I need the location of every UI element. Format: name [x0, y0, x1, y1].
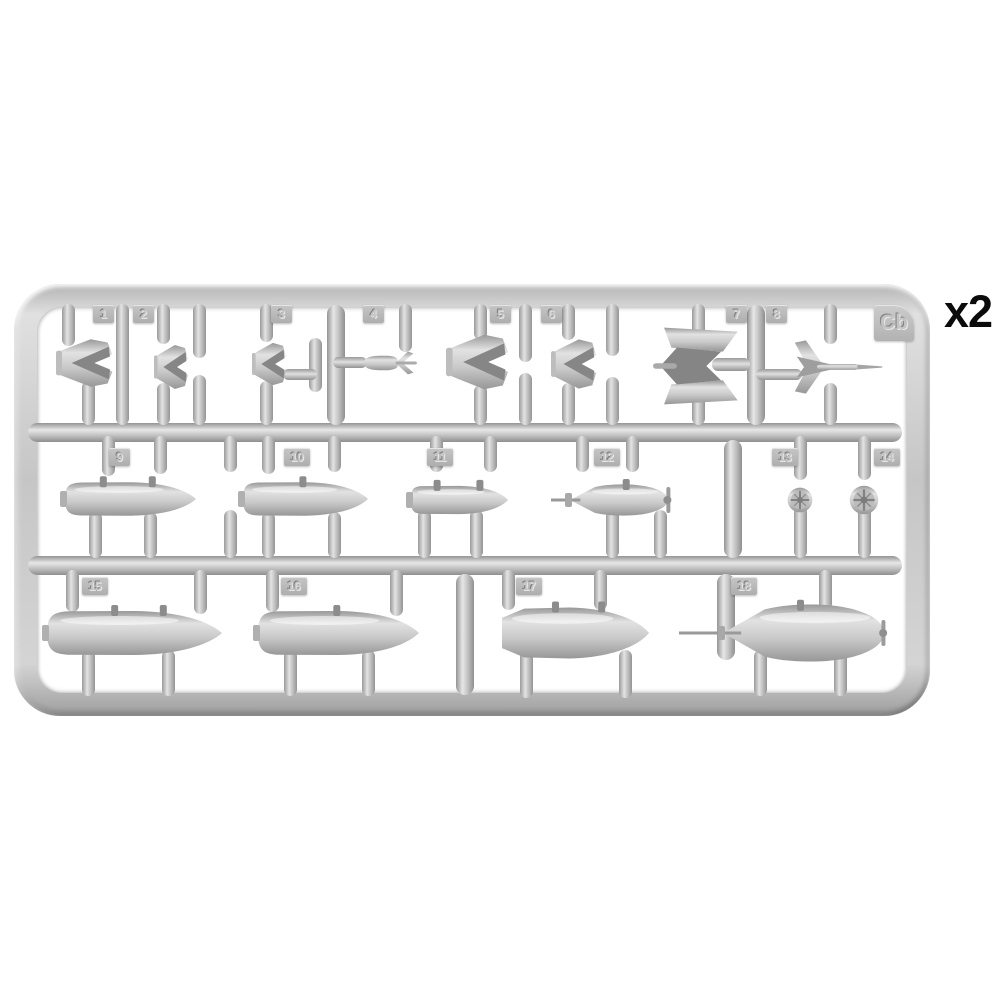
gate-post	[157, 304, 170, 344]
part-15-large-bomb-body-half	[44, 608, 224, 658]
part-number-tag: 13	[772, 448, 798, 466]
gate-post	[606, 304, 619, 356]
part-number-tag: 4	[363, 305, 384, 323]
gate-post	[144, 512, 157, 558]
part-number-tag: 11	[427, 448, 453, 466]
gate-post	[606, 377, 619, 425]
gate-post	[519, 304, 532, 362]
part-16-large-bomb-body-half	[255, 608, 421, 658]
part-number-tag: 14	[874, 448, 900, 466]
gate-post	[328, 512, 341, 558]
gate-post	[606, 510, 619, 558]
gate-post	[399, 304, 412, 352]
sprue-photo-canvas: 123456789101112131415161718 Cb x2	[0, 0, 1000, 1000]
part-5-box-fin-tail-unit	[446, 331, 512, 393]
part-17-large-bomb-body-boat-tail	[498, 604, 652, 662]
gate-post	[328, 436, 341, 472]
gate-post	[654, 510, 667, 558]
vertical-runner	[724, 440, 742, 558]
part-9-bomb-body-half	[62, 480, 198, 518]
part-13-arming-vane-disc	[787, 487, 813, 513]
gate-post	[562, 304, 575, 340]
part-number-tag: 8	[766, 305, 787, 323]
gate-post	[224, 510, 237, 558]
part-18-large-bomb-body-with-nose-spike	[679, 602, 895, 664]
gate-post	[193, 375, 206, 425]
gate-post	[154, 436, 167, 474]
part-11-bomb-body-half	[408, 484, 510, 516]
gate-bar	[283, 369, 317, 380]
part-7-large-plate-fin-tail-unit	[653, 326, 745, 406]
gate-post	[193, 304, 206, 358]
part-4-small-finned-bomb	[362, 348, 418, 378]
part-number-tag: 15	[82, 577, 108, 595]
gate-post	[66, 570, 79, 612]
gate-post	[262, 512, 275, 558]
gate-post	[266, 570, 279, 612]
part-number-tag: 2	[133, 305, 154, 323]
part-2-box-fin-tail-unit	[154, 342, 190, 392]
part-10-bomb-body-half	[240, 480, 370, 518]
gate-post	[519, 373, 532, 425]
part-12-bomb-body-with-nose-spike	[551, 483, 677, 517]
gate-post	[418, 510, 431, 558]
gate-post	[794, 506, 807, 558]
part-1-box-fin-tail-unit	[56, 336, 116, 390]
part-number-tag: 7	[726, 305, 747, 323]
horizontal-runner-2	[28, 556, 902, 575]
sprue-gate-label: Cb	[874, 305, 914, 341]
part-number-tag: 5	[490, 305, 511, 323]
gate-post	[116, 304, 129, 425]
part-8-dart-fin-tail-unit	[793, 338, 885, 396]
part-number-tag: 17	[516, 577, 542, 595]
gate-post	[470, 510, 483, 558]
part-number-tag: 6	[541, 305, 562, 323]
gate-post	[262, 436, 275, 474]
part-number-tag: 9	[109, 448, 130, 466]
quantity-label: x2	[944, 286, 992, 338]
part-number-tag: 3	[271, 305, 292, 323]
gate-post	[89, 512, 102, 558]
gate-post	[858, 436, 871, 480]
part-number-tag: 16	[281, 577, 307, 595]
part-14-arming-vane-disc	[849, 485, 879, 515]
vertical-runner	[456, 574, 474, 695]
part-number-tag: 12	[594, 448, 620, 466]
part-number-tag: 10	[284, 448, 310, 466]
gate-post	[576, 436, 589, 472]
part-6-box-fin-tail-unit	[551, 336, 599, 392]
part-number-tag: 18	[731, 577, 757, 595]
part-number-tag: 1	[93, 305, 114, 323]
gate-post	[224, 436, 237, 472]
gate-post	[309, 338, 322, 392]
part-3-box-fin-tail-unit	[252, 340, 288, 388]
gate-post	[626, 436, 639, 472]
gate-post	[484, 436, 497, 472]
